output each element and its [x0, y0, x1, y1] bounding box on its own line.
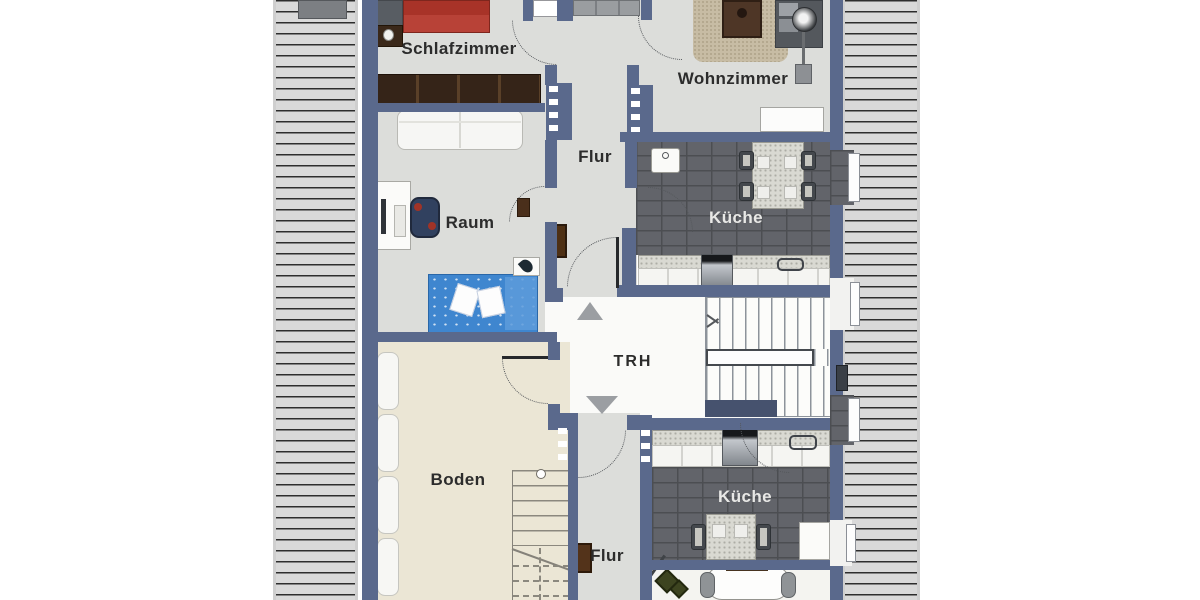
window-kueche-upper	[848, 153, 860, 202]
shelf-unit	[377, 414, 399, 472]
chair	[801, 151, 816, 170]
triangle-down-icon	[586, 396, 618, 414]
chair	[801, 182, 816, 201]
stairs-boden-treads	[513, 470, 569, 546]
placemat	[757, 186, 770, 199]
wall-exterior-left	[362, 0, 378, 600]
wall-schlafzimmer-raum	[378, 103, 545, 112]
wall-segment	[625, 135, 637, 188]
hall-cabinet-gray	[573, 0, 640, 16]
corner-cabinet	[799, 522, 830, 560]
wall-segment	[545, 140, 557, 188]
shelf-unit	[377, 352, 399, 410]
room-label-schlafzimmer: Schlafzimmer	[401, 39, 516, 59]
stairs-dashed-rail	[539, 548, 541, 600]
room-label-kueche-lower: Küche	[718, 487, 772, 507]
wall-trh-top-left	[545, 288, 563, 302]
chair	[756, 524, 771, 550]
coffee-table	[722, 0, 762, 38]
stairs-newel-icon	[536, 469, 546, 479]
sofa-white-seam	[459, 112, 461, 148]
double-bed-red	[403, 0, 490, 33]
washbasin-faucet-icon	[662, 152, 669, 159]
placemat	[784, 186, 797, 199]
office-chair-accent	[414, 203, 422, 211]
wall-segment	[545, 65, 557, 85]
room-label-kueche-upper: Küche	[709, 208, 763, 228]
window-kueche-lower	[848, 398, 860, 442]
wardrobe	[377, 74, 541, 104]
oval-table	[706, 566, 790, 600]
window-small-dark	[836, 365, 848, 391]
placemat	[784, 156, 797, 169]
sink-icon	[777, 258, 804, 271]
room-label-raum: Raum	[446, 213, 495, 233]
roof-hatch-left	[273, 0, 358, 600]
wall-wohnzimmer-kueche	[620, 132, 830, 142]
placemat	[712, 524, 726, 538]
chimney	[298, 0, 347, 19]
wardrobe-doors-icon	[549, 86, 558, 137]
desk-keyboard	[394, 205, 406, 237]
floorplan-canvas: Schlafzimmer Wohnzimmer Flur Küche Raum …	[0, 0, 1200, 600]
stairs-main-upper-flight	[706, 298, 842, 349]
floor-lamp-base	[795, 64, 812, 84]
sofa-white-backline	[399, 121, 521, 123]
wardrobe-doors-icon	[641, 430, 650, 464]
room-label-boden: Boden	[431, 470, 486, 490]
wall-segment	[557, 0, 573, 21]
kids-bed-foot	[505, 277, 537, 330]
floor-lamp	[792, 7, 817, 32]
stove-icon	[701, 254, 733, 287]
room-label-trh: TRH	[614, 353, 653, 371]
wall-segment	[545, 222, 557, 288]
counter-upper-cabinets	[638, 268, 830, 286]
wall-segment	[627, 65, 639, 87]
wall-segment	[622, 228, 636, 287]
wall-boden-flur	[568, 413, 578, 600]
coffee-table-center	[737, 8, 747, 18]
stairs-dashed-tread	[513, 565, 569, 567]
placemat	[734, 524, 748, 538]
shelf-unit	[377, 538, 399, 596]
shelf-unit	[377, 476, 399, 534]
room-label-flur-lower: Flur	[590, 546, 624, 566]
chair	[739, 151, 754, 170]
wardrobe-doors-icon	[558, 428, 567, 462]
wall-raum-boden	[362, 332, 557, 342]
chair-round	[781, 572, 796, 598]
room-label-flur-upper: Flur	[578, 147, 612, 167]
sideboard	[760, 107, 824, 132]
stairs-dashed-tread	[513, 580, 569, 582]
wall-kueche-lower-bottom	[648, 560, 843, 570]
stairs-landing-rail	[706, 349, 814, 366]
window-trh	[850, 282, 860, 326]
sink-icon	[789, 435, 817, 450]
chair	[739, 182, 754, 201]
placemat	[757, 156, 770, 169]
window-room-bottom	[846, 524, 856, 562]
room-label-wohnzimmer: Wohnzimmer	[678, 69, 788, 89]
wall-segment	[548, 342, 560, 360]
entry-door-top	[533, 0, 559, 17]
wardrobe-doors-icon	[631, 88, 640, 132]
office-chair-accent2	[428, 222, 436, 230]
wall-trh-top	[617, 285, 843, 297]
chair-round	[700, 572, 715, 598]
understair-mat	[705, 400, 777, 417]
desk-monitor	[381, 199, 386, 234]
wall-segment	[523, 0, 533, 21]
stairs-dashed-tread	[513, 595, 569, 597]
bedside-lamp	[383, 29, 394, 41]
triangle-up-icon	[577, 302, 603, 320]
chair	[691, 524, 706, 550]
